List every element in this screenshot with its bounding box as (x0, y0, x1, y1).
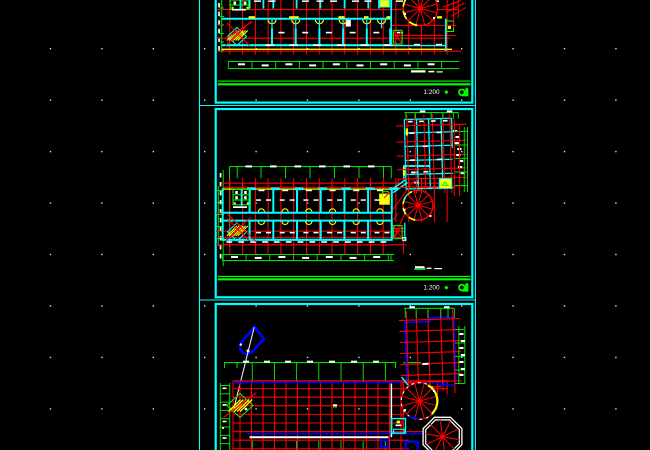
svg-text:1:200: 1:200 (424, 285, 440, 292)
svg-text:1:200: 1:200 (424, 89, 440, 96)
